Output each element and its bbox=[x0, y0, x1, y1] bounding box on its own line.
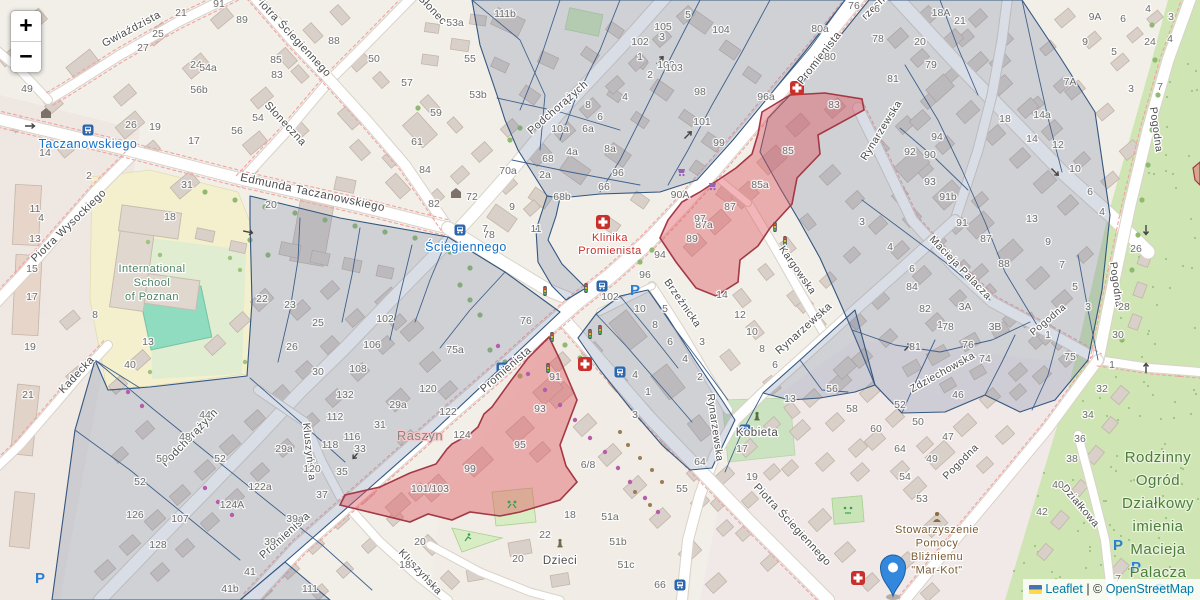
svg-text:50: 50 bbox=[368, 53, 380, 65]
svg-text:108: 108 bbox=[349, 363, 367, 375]
svg-text:7: 7 bbox=[482, 223, 488, 235]
svg-text:1: 1 bbox=[645, 386, 651, 398]
svg-text:92: 92 bbox=[904, 146, 916, 158]
svg-text:4: 4 bbox=[632, 369, 638, 381]
svg-text:14a: 14a bbox=[1033, 109, 1051, 121]
svg-text:13: 13 bbox=[784, 393, 796, 405]
svg-text:94: 94 bbox=[931, 131, 943, 143]
svg-text:4: 4 bbox=[622, 91, 628, 103]
svg-text:Pomocy: Pomocy bbox=[916, 538, 959, 550]
svg-text:25: 25 bbox=[152, 28, 164, 40]
svg-text:Ogród: Ogród bbox=[1136, 472, 1180, 489]
svg-text:6/8: 6/8 bbox=[581, 459, 596, 471]
svg-text:School: School bbox=[134, 277, 171, 289]
svg-text:17: 17 bbox=[188, 135, 200, 147]
svg-text:99: 99 bbox=[713, 137, 725, 149]
svg-text:33: 33 bbox=[354, 443, 366, 455]
svg-text:101: 101 bbox=[693, 116, 711, 128]
svg-text:66: 66 bbox=[598, 181, 610, 193]
svg-text:50: 50 bbox=[156, 453, 168, 465]
svg-text:Kobieta: Kobieta bbox=[736, 427, 779, 439]
svg-text:18: 18 bbox=[399, 559, 411, 571]
svg-text:85: 85 bbox=[782, 145, 794, 157]
svg-text:89: 89 bbox=[686, 233, 698, 245]
svg-text:55: 55 bbox=[464, 53, 476, 65]
svg-text:22: 22 bbox=[256, 293, 268, 305]
svg-text:20: 20 bbox=[512, 553, 524, 565]
svg-text:102: 102 bbox=[376, 313, 394, 325]
svg-text:101/103: 101/103 bbox=[411, 483, 449, 495]
svg-text:120: 120 bbox=[419, 383, 437, 395]
svg-text:102: 102 bbox=[631, 36, 649, 48]
svg-text:90A: 90A bbox=[671, 189, 690, 201]
svg-text:96: 96 bbox=[639, 269, 651, 281]
svg-text:74: 74 bbox=[979, 353, 991, 365]
svg-text:4: 4 bbox=[1099, 206, 1105, 218]
svg-text:6: 6 bbox=[1120, 13, 1126, 25]
svg-text:54a: 54a bbox=[199, 62, 217, 74]
svg-text:20: 20 bbox=[414, 536, 426, 548]
svg-text:26: 26 bbox=[286, 341, 298, 353]
svg-text:30: 30 bbox=[1112, 329, 1124, 341]
svg-text:3: 3 bbox=[659, 31, 665, 43]
svg-text:84: 84 bbox=[419, 164, 431, 176]
svg-text:72: 72 bbox=[466, 191, 478, 203]
svg-text:80: 80 bbox=[824, 51, 836, 63]
svg-text:47: 47 bbox=[942, 431, 954, 443]
svg-text:2: 2 bbox=[647, 69, 653, 81]
svg-text:imienia: imienia bbox=[1132, 518, 1183, 535]
svg-text:31: 31 bbox=[374, 419, 386, 431]
svg-text:17: 17 bbox=[736, 443, 748, 455]
svg-text:91b: 91b bbox=[939, 191, 957, 203]
svg-text:19: 19 bbox=[24, 341, 36, 353]
svg-text:1: 1 bbox=[1045, 329, 1051, 341]
svg-text:32: 32 bbox=[1096, 383, 1108, 395]
svg-text:4a: 4a bbox=[566, 146, 578, 158]
svg-text:59: 59 bbox=[430, 107, 442, 119]
svg-text:84: 84 bbox=[906, 281, 918, 293]
svg-text:44: 44 bbox=[199, 409, 211, 421]
svg-text:90: 90 bbox=[924, 149, 936, 161]
svg-text:14: 14 bbox=[1026, 133, 1038, 145]
svg-text:116: 116 bbox=[344, 431, 361, 443]
svg-text:58: 58 bbox=[846, 403, 858, 415]
svg-text:118: 118 bbox=[322, 439, 339, 451]
svg-text:Raszyn: Raszyn bbox=[397, 428, 443, 443]
svg-text:39: 39 bbox=[264, 536, 276, 548]
svg-text:41b: 41b bbox=[221, 583, 239, 595]
svg-text:53b: 53b bbox=[469, 89, 487, 101]
svg-text:95: 95 bbox=[514, 439, 526, 451]
svg-text:50: 50 bbox=[912, 416, 924, 428]
svg-text:3: 3 bbox=[1128, 83, 1134, 95]
svg-text:49: 49 bbox=[926, 453, 938, 465]
svg-text:96a: 96a bbox=[757, 91, 775, 103]
svg-text:53a: 53a bbox=[446, 17, 464, 29]
svg-text:10a: 10a bbox=[551, 123, 569, 135]
svg-text:39a: 39a bbox=[286, 513, 304, 525]
svg-text:Stowarzyszenie: Stowarzyszenie bbox=[895, 524, 979, 536]
svg-text:Macieja: Macieja bbox=[1130, 541, 1185, 558]
svg-text:26: 26 bbox=[1130, 243, 1142, 255]
svg-text:3: 3 bbox=[1168, 11, 1174, 23]
svg-text:13: 13 bbox=[142, 336, 154, 348]
svg-text:99: 99 bbox=[464, 463, 476, 475]
svg-text:54: 54 bbox=[899, 471, 911, 483]
svg-text:8: 8 bbox=[759, 343, 765, 355]
svg-text:20: 20 bbox=[265, 199, 277, 211]
svg-text:19: 19 bbox=[149, 121, 161, 133]
svg-text:6: 6 bbox=[772, 359, 778, 371]
svg-text:Klinika: Klinika bbox=[592, 232, 628, 244]
svg-text:75a: 75a bbox=[446, 344, 464, 356]
svg-text:124: 124 bbox=[453, 429, 471, 441]
svg-text:5: 5 bbox=[685, 9, 691, 21]
svg-text:P: P bbox=[630, 282, 640, 299]
svg-text:104: 104 bbox=[712, 24, 730, 36]
svg-text:25: 25 bbox=[312, 317, 324, 329]
svg-text:21: 21 bbox=[954, 15, 966, 27]
svg-text:3: 3 bbox=[859, 216, 865, 228]
svg-text:51a: 51a bbox=[601, 511, 619, 523]
svg-text:21: 21 bbox=[175, 7, 187, 19]
svg-text:7: 7 bbox=[1157, 81, 1163, 93]
svg-text:8: 8 bbox=[652, 319, 658, 331]
svg-text:10: 10 bbox=[746, 326, 758, 338]
svg-text:24: 24 bbox=[1144, 36, 1156, 48]
svg-text:80a: 80a bbox=[811, 23, 829, 35]
svg-text:1: 1 bbox=[1109, 359, 1115, 371]
svg-text:98: 98 bbox=[694, 86, 706, 98]
svg-text:6: 6 bbox=[909, 263, 915, 275]
svg-text:79: 79 bbox=[925, 59, 937, 71]
svg-text:18A: 18A bbox=[932, 7, 951, 19]
svg-text:96: 96 bbox=[612, 167, 624, 179]
svg-text:111: 111 bbox=[302, 583, 318, 595]
svg-text:122a: 122a bbox=[248, 481, 272, 493]
svg-text:106: 106 bbox=[363, 339, 381, 351]
svg-text:2a: 2a bbox=[539, 169, 551, 181]
svg-text:14: 14 bbox=[39, 147, 51, 159]
svg-text:11: 11 bbox=[30, 203, 41, 215]
svg-text:102: 102 bbox=[601, 291, 619, 303]
svg-text:7: 7 bbox=[1059, 259, 1065, 271]
svg-text:56: 56 bbox=[826, 383, 838, 395]
svg-text:132: 132 bbox=[336, 389, 354, 401]
svg-text:10: 10 bbox=[634, 303, 646, 315]
svg-text:22: 22 bbox=[539, 529, 551, 541]
svg-text:75: 75 bbox=[1064, 351, 1076, 363]
svg-text:International: International bbox=[118, 263, 185, 275]
svg-text:87: 87 bbox=[724, 201, 736, 213]
svg-text:81: 81 bbox=[887, 73, 899, 85]
svg-text:31: 31 bbox=[181, 179, 193, 191]
svg-text:5: 5 bbox=[1111, 46, 1117, 58]
svg-text:8: 8 bbox=[585, 99, 591, 111]
svg-text:61: 61 bbox=[411, 136, 423, 148]
svg-text:85a: 85a bbox=[751, 179, 769, 191]
svg-text:52: 52 bbox=[214, 453, 226, 465]
svg-text:81: 81 bbox=[909, 341, 921, 353]
svg-text:126: 126 bbox=[126, 509, 144, 521]
svg-text:4: 4 bbox=[887, 241, 893, 253]
svg-text:Dzieci: Dzieci bbox=[543, 555, 577, 567]
svg-text:64: 64 bbox=[894, 443, 906, 455]
svg-text:9A: 9A bbox=[1089, 11, 1102, 23]
svg-text:Bliźniemu: Bliźniemu bbox=[911, 551, 963, 563]
svg-text:29a: 29a bbox=[275, 443, 293, 455]
svg-text:48: 48 bbox=[179, 431, 191, 443]
svg-text:Działkowy: Działkowy bbox=[1122, 495, 1194, 512]
svg-text:3A: 3A bbox=[959, 301, 972, 313]
svg-text:97: 97 bbox=[694, 213, 706, 225]
svg-text:8a: 8a bbox=[604, 143, 616, 155]
svg-text:76: 76 bbox=[520, 315, 532, 327]
svg-text:5: 5 bbox=[1072, 281, 1078, 293]
svg-text:2: 2 bbox=[86, 170, 92, 182]
svg-text:P: P bbox=[1113, 537, 1123, 554]
svg-text:89: 89 bbox=[236, 14, 248, 26]
svg-text:122: 122 bbox=[439, 406, 457, 418]
svg-text:7A: 7A bbox=[1064, 76, 1077, 88]
svg-text:9: 9 bbox=[509, 201, 515, 213]
svg-text:120: 120 bbox=[303, 463, 321, 475]
svg-text:10: 10 bbox=[1069, 163, 1081, 175]
svg-text:60: 60 bbox=[870, 423, 882, 435]
svg-text:5: 5 bbox=[662, 303, 668, 315]
svg-text:Promienista: Promienista bbox=[578, 245, 642, 257]
svg-text:46: 46 bbox=[952, 389, 964, 401]
svg-text:13: 13 bbox=[1026, 213, 1038, 225]
svg-text:112: 112 bbox=[327, 411, 344, 423]
svg-text:3: 3 bbox=[699, 336, 705, 348]
svg-text:38: 38 bbox=[1066, 453, 1078, 465]
svg-text:30: 30 bbox=[312, 366, 324, 378]
svg-text:13: 13 bbox=[29, 233, 41, 245]
svg-text:18: 18 bbox=[164, 211, 176, 223]
svg-text:83: 83 bbox=[271, 69, 283, 81]
svg-text:4: 4 bbox=[682, 353, 688, 365]
svg-text:91: 91 bbox=[956, 217, 968, 229]
svg-text:111b: 111b bbox=[494, 8, 516, 20]
svg-text:9: 9 bbox=[1045, 236, 1051, 248]
svg-text:6: 6 bbox=[597, 111, 603, 123]
svg-text:14: 14 bbox=[716, 289, 728, 301]
svg-text:1: 1 bbox=[637, 51, 643, 63]
svg-text:93: 93 bbox=[924, 176, 936, 188]
svg-text:26: 26 bbox=[125, 119, 137, 131]
svg-text:P: P bbox=[35, 570, 45, 587]
svg-text:93: 93 bbox=[534, 403, 546, 415]
svg-text:19: 19 bbox=[746, 471, 758, 483]
svg-text:51b: 51b bbox=[609, 536, 627, 548]
svg-text:56: 56 bbox=[231, 125, 243, 137]
svg-text:15: 15 bbox=[26, 263, 38, 275]
svg-text:17: 17 bbox=[26, 291, 38, 303]
svg-text:"Mar-Kot": "Mar-Kot" bbox=[911, 565, 962, 577]
svg-text:78: 78 bbox=[872, 33, 884, 45]
svg-text:12: 12 bbox=[734, 309, 746, 321]
svg-text:49: 49 bbox=[21, 83, 33, 95]
svg-text:41: 41 bbox=[244, 566, 256, 578]
svg-text:70a: 70a bbox=[499, 165, 517, 177]
svg-text:107: 107 bbox=[171, 513, 189, 525]
svg-text:85: 85 bbox=[270, 54, 282, 66]
svg-text:87: 87 bbox=[980, 233, 992, 245]
svg-text:18: 18 bbox=[564, 509, 576, 521]
svg-text:57: 57 bbox=[401, 77, 413, 89]
svg-text:20: 20 bbox=[914, 36, 926, 48]
svg-text:4: 4 bbox=[1167, 33, 1173, 45]
svg-text:82: 82 bbox=[919, 303, 931, 315]
svg-text:Rodzinny: Rodzinny bbox=[1125, 449, 1192, 466]
svg-text:21: 21 bbox=[22, 389, 34, 401]
svg-text:52: 52 bbox=[134, 476, 146, 488]
svg-text:Ściegiennego: Ściegiennego bbox=[425, 239, 507, 254]
svg-text:8: 8 bbox=[92, 309, 98, 321]
svg-text:6: 6 bbox=[874, 3, 880, 15]
svg-text:18: 18 bbox=[999, 113, 1011, 125]
svg-text:88: 88 bbox=[328, 35, 340, 47]
svg-text:56b: 56b bbox=[190, 84, 208, 96]
svg-text:40: 40 bbox=[124, 359, 136, 371]
svg-text:28: 28 bbox=[1118, 301, 1130, 313]
svg-text:53: 53 bbox=[916, 493, 928, 505]
svg-text:76: 76 bbox=[848, 0, 860, 12]
svg-text:Taczanowskiego: Taczanowskiego bbox=[39, 137, 138, 151]
svg-text:11: 11 bbox=[531, 223, 542, 235]
svg-text:6: 6 bbox=[667, 336, 673, 348]
svg-text:55: 55 bbox=[676, 483, 688, 495]
svg-text:68b: 68b bbox=[553, 191, 571, 203]
svg-text:88: 88 bbox=[998, 258, 1010, 270]
svg-text:2: 2 bbox=[697, 371, 703, 383]
svg-text:42: 42 bbox=[1036, 506, 1048, 518]
svg-text:23: 23 bbox=[284, 299, 296, 311]
svg-text:12: 12 bbox=[1052, 139, 1064, 151]
svg-text:37: 37 bbox=[316, 489, 328, 501]
svg-text:64: 64 bbox=[694, 456, 706, 468]
svg-text:66: 66 bbox=[654, 579, 666, 591]
svg-text:82: 82 bbox=[428, 198, 440, 210]
svg-text:9: 9 bbox=[1082, 36, 1088, 48]
svg-text:3: 3 bbox=[1085, 301, 1091, 313]
svg-text:6: 6 bbox=[1087, 186, 1093, 198]
svg-text:91: 91 bbox=[213, 0, 225, 10]
svg-text:40: 40 bbox=[1052, 479, 1064, 491]
svg-text:51c: 51c bbox=[618, 559, 635, 571]
svg-text:103: 103 bbox=[665, 62, 683, 74]
svg-text:124A: 124A bbox=[220, 499, 245, 511]
svg-text:128: 128 bbox=[149, 539, 167, 551]
svg-text:27: 27 bbox=[137, 42, 149, 54]
svg-text:76: 76 bbox=[962, 339, 974, 351]
svg-text:78: 78 bbox=[942, 321, 954, 333]
svg-text:94: 94 bbox=[654, 249, 666, 261]
svg-text:4: 4 bbox=[1145, 3, 1151, 15]
svg-text:29a: 29a bbox=[389, 399, 407, 411]
svg-text:91: 91 bbox=[549, 371, 561, 383]
svg-text:68: 68 bbox=[542, 153, 554, 165]
svg-text:36: 36 bbox=[1074, 433, 1086, 445]
svg-text:3B: 3B bbox=[989, 321, 1002, 333]
svg-text:34: 34 bbox=[1082, 409, 1094, 421]
svg-text:of Poznan: of Poznan bbox=[125, 291, 179, 303]
svg-text:3: 3 bbox=[632, 409, 638, 421]
svg-text:83: 83 bbox=[828, 99, 840, 111]
svg-text:54: 54 bbox=[252, 112, 264, 124]
svg-text:6a: 6a bbox=[582, 123, 594, 135]
svg-text:35: 35 bbox=[336, 466, 348, 478]
svg-text:52: 52 bbox=[894, 399, 906, 411]
